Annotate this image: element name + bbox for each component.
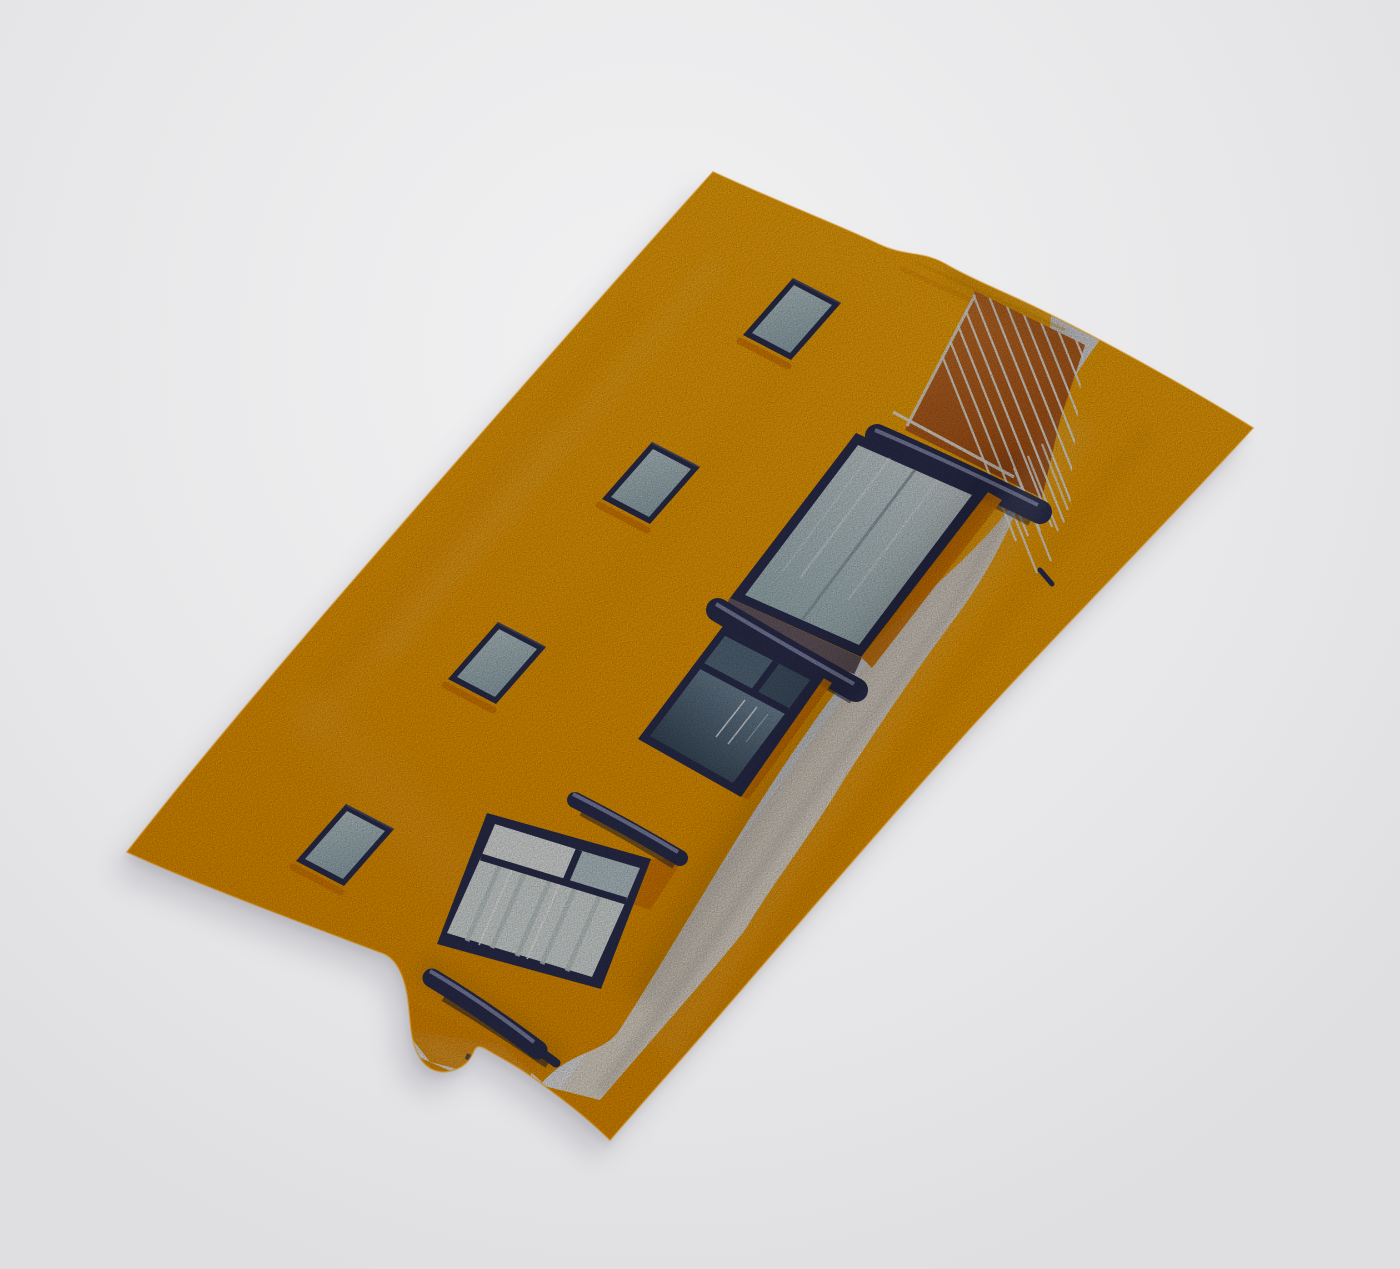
product-mockup-image [0, 0, 1400, 1269]
mockup-scene [0, 0, 1400, 1269]
